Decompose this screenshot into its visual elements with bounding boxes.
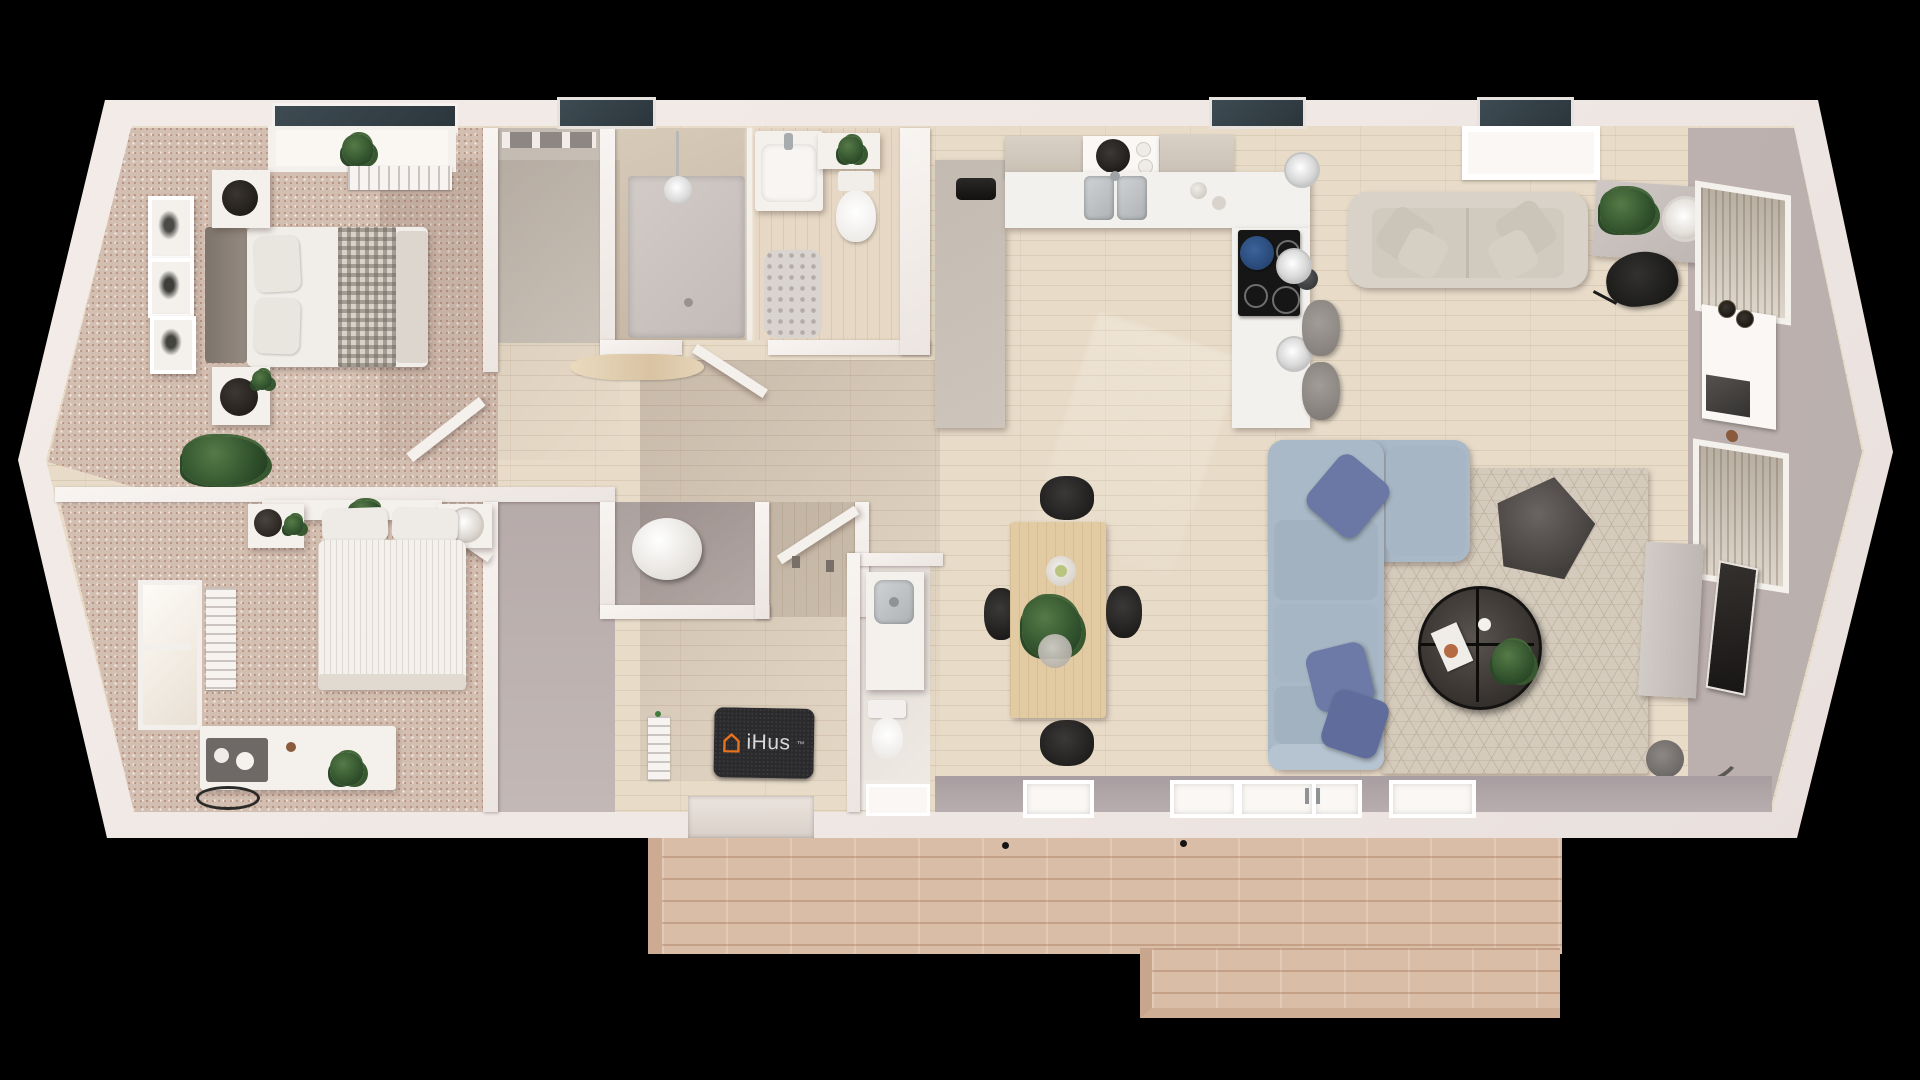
wall-wc-top	[847, 553, 943, 566]
desk-plant	[1600, 188, 1656, 234]
wall-bathroom-right	[900, 128, 930, 355]
deck-door-stop	[1002, 842, 1009, 849]
bottom-window	[1389, 780, 1476, 818]
kitchen-sink-basin	[1084, 176, 1114, 220]
floor-tray	[196, 786, 260, 810]
shower-pipe	[676, 131, 679, 181]
closet-handle-mark	[826, 560, 834, 572]
wall-boiler-closet-bottom	[600, 605, 770, 619]
bed-1-throw-blanket	[338, 227, 396, 367]
pendant-light	[1284, 152, 1320, 188]
bar-stool	[1302, 362, 1340, 420]
kitchen-tap	[1110, 171, 1120, 181]
utensil-pot	[1212, 196, 1226, 210]
wc-window	[866, 784, 930, 816]
table-clock	[222, 180, 258, 216]
wall-bedroom1-right	[483, 128, 498, 372]
bar-stool	[1302, 300, 1340, 356]
kettle	[1190, 182, 1207, 199]
right-window	[1695, 180, 1791, 325]
bed-1-duvet-fold	[396, 231, 428, 363]
dresser-ornament	[286, 742, 296, 752]
hob-burner	[1244, 284, 1268, 308]
dining-chair	[1040, 720, 1094, 766]
vanity-tap	[784, 133, 793, 150]
deck-door-stop	[1180, 840, 1187, 847]
entrance-threshold	[688, 796, 814, 838]
dining-chair	[1106, 586, 1142, 638]
art-print	[158, 270, 180, 300]
wc-toilet-bowl	[872, 717, 903, 759]
tv-console	[1638, 542, 1704, 699]
kitchen-counter	[1005, 172, 1310, 228]
bedroom-2-window-mullion	[140, 644, 190, 650]
candle	[214, 748, 229, 763]
radiator-valve	[655, 711, 661, 717]
water-heater	[632, 518, 702, 580]
dining-plant-vase	[1038, 634, 1072, 668]
shower-drain	[684, 298, 693, 307]
wc-toilet-cistern	[868, 700, 906, 718]
closet-handle-mark	[792, 556, 800, 568]
hob-burner	[1272, 286, 1300, 314]
shower-head	[664, 176, 692, 204]
bed-2-pillow	[321, 507, 388, 543]
wall-closet-divider	[755, 502, 769, 619]
vanity-basin	[761, 144, 817, 202]
bed-1-pillow	[253, 297, 301, 355]
skylight	[1477, 97, 1574, 129]
bedroom-1-floor-plant	[182, 436, 268, 486]
shelf-speaker-cube	[1706, 375, 1750, 418]
bedroom-2-window	[138, 580, 202, 730]
pendant-light	[1276, 248, 1312, 284]
wall-bathroom-bottom-a	[600, 340, 682, 355]
deck-main	[648, 830, 1562, 954]
sofa-cream-seat-divider	[1466, 208, 1469, 278]
wall-wc-left	[847, 553, 860, 812]
bedroom-1-radiator	[348, 166, 452, 190]
wall-art-frame	[148, 258, 194, 318]
bedroom-2-radiator	[206, 588, 236, 690]
entrance-doormat: iHus™	[713, 707, 814, 779]
skylight	[1209, 97, 1306, 129]
toilet-cistern	[838, 171, 874, 191]
patio-door-handle	[1305, 788, 1309, 804]
bed-2-duvet	[318, 540, 466, 688]
coffee-machine	[1096, 139, 1130, 173]
bed-1-pillow	[253, 235, 302, 293]
bath-mat	[764, 250, 822, 338]
bed-2-pillow	[391, 507, 458, 543]
dining-chair	[1040, 476, 1094, 520]
dresser-plant	[330, 752, 364, 786]
bed-1-headboard	[205, 227, 247, 363]
shower-glass	[747, 128, 752, 340]
art-print	[160, 328, 182, 356]
deck-step	[1140, 948, 1560, 1018]
art-print	[158, 210, 180, 240]
bed-2-duvet-fold	[318, 674, 466, 690]
doormat-trademark: ™	[796, 739, 804, 748]
teapot-lid	[1055, 565, 1067, 577]
bottom-window	[1023, 780, 1094, 818]
candle	[1478, 618, 1491, 631]
sofa-blue-cushion	[1274, 520, 1378, 600]
table-lamp	[254, 509, 282, 537]
nightstand-plant	[284, 515, 304, 535]
kitchen-upper-cabinet	[1005, 136, 1083, 176]
toaster	[956, 178, 996, 200]
bedroom-2-wardrobe-block	[498, 502, 615, 812]
sofa-blue-chaise-cushion	[1386, 446, 1466, 556]
bottom-window	[1170, 780, 1238, 818]
cooking-pot-blue	[1240, 236, 1274, 270]
hallway-rug	[570, 354, 704, 380]
patio-door-handle	[1316, 788, 1320, 804]
wine-bottle	[1736, 310, 1754, 328]
kitchen-tall-unit	[935, 160, 1005, 428]
skylight	[557, 97, 656, 129]
wall-art-frame	[150, 316, 196, 374]
wardrobe-door-track	[502, 132, 596, 148]
coffee-table-plant	[1492, 640, 1534, 684]
floor-plan-render: iHus™	[0, 0, 1920, 1080]
toilet-bowl	[836, 190, 876, 242]
nightstand-plant	[252, 370, 272, 390]
candle	[236, 752, 254, 770]
coffee-cup	[1136, 142, 1151, 157]
ihus-house-icon	[723, 733, 740, 752]
wine-bottle	[1718, 300, 1736, 318]
kitchen-sink-basin	[1117, 176, 1147, 220]
wc-sink-drain	[889, 597, 899, 607]
wall-art-frame	[148, 196, 194, 260]
entrance-radiator	[648, 716, 670, 780]
toilet-shelf-plant	[838, 136, 864, 164]
wall-boiler-closet-left	[600, 502, 615, 612]
wall-bathroom-left	[600, 128, 615, 355]
doormat-brand-text: iHus	[746, 731, 790, 756]
sill-plant	[342, 134, 374, 166]
rooflight-frame	[1462, 126, 1600, 180]
